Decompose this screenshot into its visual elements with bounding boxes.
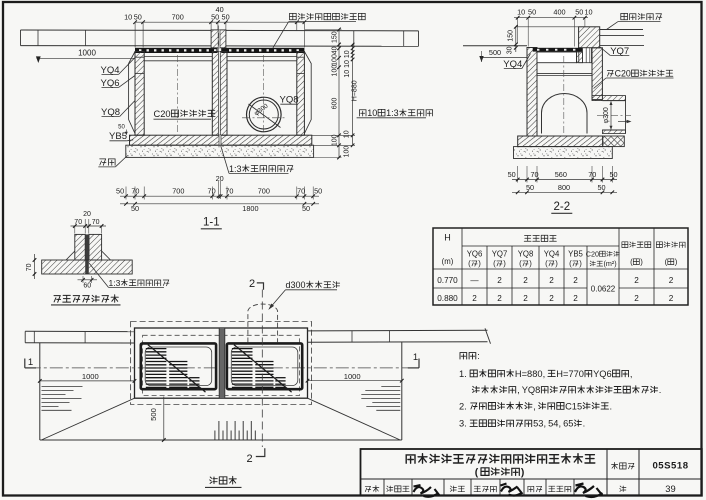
svg-text:50: 50 [118, 125, 125, 131]
svg-text:φ300: φ300 [603, 107, 610, 123]
svg-text:2: 2 [634, 276, 639, 285]
svg-text:150: 150 [331, 31, 338, 43]
svg-text:70: 70 [588, 170, 596, 179]
svg-text:0.0622: 0.0622 [591, 285, 616, 294]
svg-text:2: 2 [549, 294, 554, 303]
svg-text:700: 700 [258, 187, 270, 196]
svg-text:C15: C15 [565, 401, 582, 411]
svg-text:600: 600 [331, 97, 338, 109]
svg-text:,: , [533, 401, 536, 411]
svg-text:YQ4: YQ4 [544, 250, 560, 259]
svg-text:54: 54 [548, 419, 558, 429]
svg-text:10: 10 [367, 108, 377, 118]
svg-text:100: 100 [331, 134, 338, 146]
svg-text:50: 50 [508, 170, 516, 179]
svg-text:0.880: 0.880 [437, 294, 458, 303]
svg-text:): ) [503, 259, 506, 268]
svg-text:H=880: H=880 [515, 369, 543, 379]
svg-text:39: 39 [665, 483, 675, 494]
svg-text:1800: 1800 [242, 204, 258, 213]
svg-text:(: ( [569, 259, 572, 268]
svg-text:YQ7: YQ7 [492, 250, 508, 259]
svg-text:.: . [583, 419, 586, 429]
svg-text:(: ( [545, 259, 548, 268]
svg-text:1:3: 1:3 [229, 164, 242, 174]
svg-text:): ) [640, 258, 643, 267]
svg-text:70: 70 [26, 263, 33, 271]
svg-text:1.: 1. [459, 369, 467, 379]
svg-text:1:3: 1:3 [386, 108, 399, 118]
svg-text:C20: C20 [586, 250, 599, 259]
svg-text:70: 70 [530, 170, 538, 179]
svg-text:50: 50 [526, 183, 534, 192]
svg-text:0.770: 0.770 [437, 276, 458, 285]
svg-text:100: 100 [343, 146, 350, 158]
svg-text:): ) [579, 259, 582, 268]
svg-text:100: 100 [331, 65, 338, 77]
svg-text:(: ( [468, 259, 471, 268]
svg-text:30: 30 [507, 46, 514, 54]
svg-text:50: 50 [528, 8, 536, 17]
svg-text:50: 50 [131, 204, 139, 213]
svg-text:70: 70 [225, 187, 233, 196]
svg-text:2: 2 [497, 276, 502, 285]
svg-text:YQ8: YQ8 [518, 250, 534, 259]
svg-text:(: ( [665, 258, 668, 267]
svg-text:50: 50 [314, 187, 322, 196]
svg-text:60: 60 [83, 282, 91, 289]
svg-text:40: 40 [331, 46, 338, 54]
svg-text:70: 70 [74, 219, 82, 226]
svg-text:1: 1 [413, 352, 418, 363]
svg-text:.: . [610, 401, 613, 411]
svg-text:2: 2 [634, 294, 639, 303]
svg-text:70: 70 [297, 187, 305, 196]
svg-text:70: 70 [208, 187, 216, 196]
svg-text:1: 1 [28, 357, 33, 368]
svg-text:1000: 1000 [78, 49, 96, 58]
svg-text:,: , [544, 419, 547, 429]
svg-text:2: 2 [549, 276, 554, 285]
svg-text:2: 2 [249, 278, 255, 290]
svg-text:2-2: 2-2 [553, 201, 570, 213]
svg-text:3.: 3. [459, 419, 467, 429]
svg-text:100: 100 [331, 54, 338, 66]
svg-text:150: 150 [507, 30, 514, 42]
svg-text:2: 2 [669, 276, 674, 285]
svg-text:800: 800 [558, 183, 570, 192]
svg-text:—: — [470, 276, 479, 285]
svg-text:(m): (m) [442, 257, 454, 266]
svg-text:700: 700 [172, 13, 184, 22]
svg-text:2: 2 [669, 294, 674, 303]
svg-text:560: 560 [555, 170, 567, 179]
svg-text:,: , [559, 419, 562, 429]
svg-text:70: 70 [131, 187, 139, 196]
svg-text:10: 10 [517, 8, 525, 17]
svg-text:2: 2 [573, 276, 578, 285]
svg-text:50: 50 [222, 13, 230, 22]
svg-text:(: ( [475, 467, 479, 478]
svg-text:2: 2 [246, 453, 252, 465]
svg-text:1000: 1000 [344, 372, 361, 381]
svg-text:2: 2 [523, 276, 528, 285]
svg-text:10: 10 [584, 8, 592, 17]
svg-text:,: , [543, 369, 546, 379]
svg-text:(: ( [519, 259, 522, 268]
svg-text:400: 400 [553, 8, 565, 17]
svg-text:50: 50 [302, 204, 310, 213]
svg-text:50: 50 [609, 170, 617, 179]
svg-text:H=770: H=770 [556, 369, 584, 379]
svg-text:H=880: H=880 [352, 80, 359, 101]
svg-text:50: 50 [597, 183, 605, 192]
svg-text:500: 500 [149, 408, 158, 421]
svg-text:10: 10 [124, 12, 132, 21]
svg-text:YB5: YB5 [568, 250, 583, 259]
svg-text:YQ6: YQ6 [467, 250, 483, 259]
svg-text:53: 53 [533, 419, 543, 429]
svg-text:10: 10 [343, 130, 350, 138]
svg-text::: : [477, 351, 480, 361]
svg-text:50: 50 [134, 12, 142, 21]
svg-text:YQ8: YQ8 [522, 385, 541, 395]
svg-text:05S518: 05S518 [652, 461, 688, 472]
svg-text:(m²): (m²) [604, 259, 617, 268]
svg-text:2: 2 [472, 294, 477, 303]
svg-text:1000: 1000 [82, 372, 99, 381]
svg-text:(: ( [630, 258, 633, 267]
svg-text:,: , [517, 385, 520, 395]
svg-text:2: 2 [573, 294, 578, 303]
svg-text:YQ6: YQ6 [593, 369, 612, 379]
svg-text:): ) [521, 467, 524, 478]
svg-text:d300: d300 [286, 280, 306, 290]
svg-text:10 10 10: 10 10 10 [344, 50, 351, 77]
svg-text:H: H [444, 233, 451, 243]
svg-text:C20: C20 [154, 109, 171, 119]
svg-text:70: 70 [92, 219, 100, 226]
svg-text:1-1: 1-1 [203, 217, 220, 229]
svg-text:65: 65 [563, 419, 573, 429]
svg-text:C20: C20 [615, 68, 631, 78]
svg-text:(: ( [493, 259, 496, 268]
svg-text:50: 50 [116, 187, 124, 196]
svg-text:): ) [529, 259, 532, 268]
svg-text:): ) [555, 259, 558, 268]
svg-text:50: 50 [211, 13, 219, 22]
svg-text:500: 500 [489, 48, 501, 57]
svg-text:50: 50 [575, 8, 583, 17]
svg-text:1:3: 1:3 [109, 278, 121, 288]
svg-text:2: 2 [497, 294, 502, 303]
svg-text:20: 20 [216, 174, 224, 183]
svg-text:): ) [478, 259, 481, 268]
svg-text:.: . [659, 385, 662, 395]
svg-text:2: 2 [523, 294, 528, 303]
svg-text:20: 20 [83, 211, 91, 218]
svg-text:): ) [675, 258, 678, 267]
svg-text:700: 700 [172, 187, 184, 196]
svg-text:,: , [630, 369, 633, 379]
svg-text:2.: 2. [459, 401, 467, 411]
